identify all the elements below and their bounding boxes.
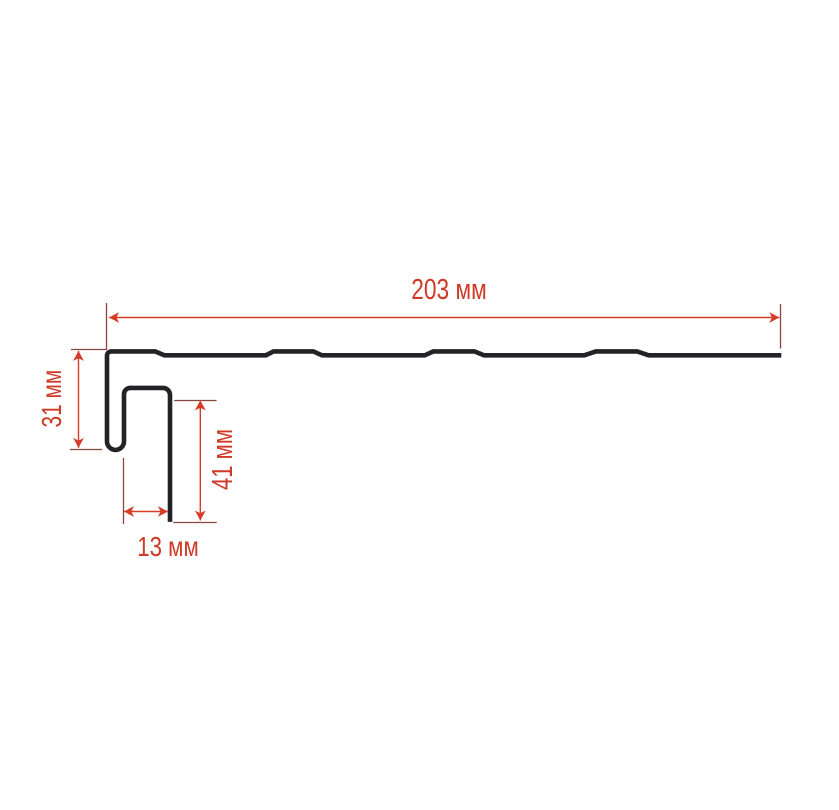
svg-text:31 мм: 31 мм — [36, 370, 67, 428]
svg-text:203 мм: 203 мм — [411, 274, 487, 306]
svg-text:13 мм: 13 мм — [137, 531, 199, 562]
svg-text:41 мм: 41 мм — [207, 429, 239, 490]
